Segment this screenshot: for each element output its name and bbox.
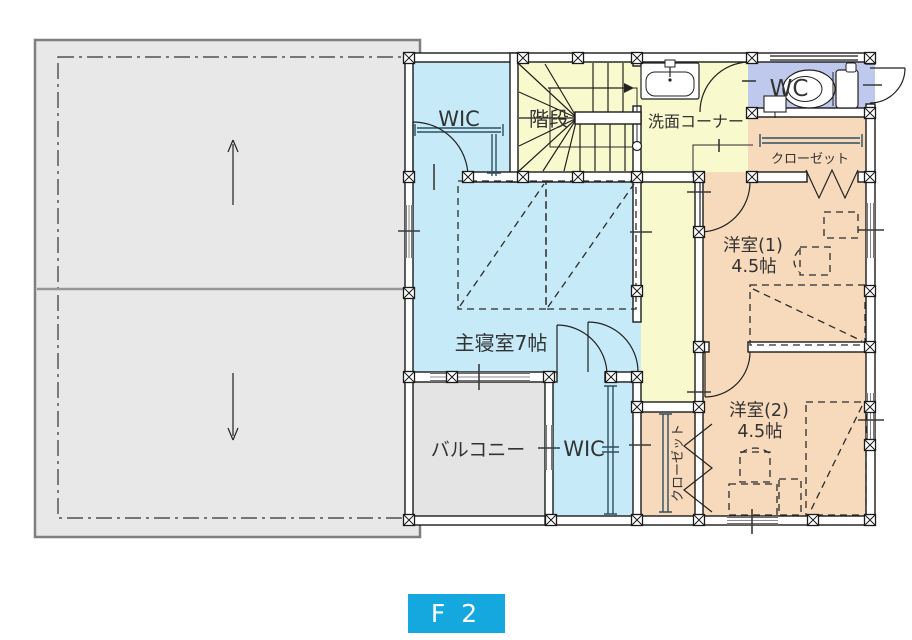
- room-western-1: [695, 172, 875, 352]
- room-label-stairs: 階段: [529, 107, 569, 131]
- room-label-balcony: バルコニー: [431, 439, 526, 461]
- floor-badge: F 2: [408, 594, 505, 633]
- room-label-washroom: 洗面コーナー: [648, 112, 744, 131]
- corridor: [633, 172, 703, 412]
- room-label-master-bedroom: 主寝室7帖: [455, 331, 548, 355]
- room-label-closet-lower: クローゼット: [671, 424, 686, 502]
- floor-plan-page: WIC 階段 洗面コーナー WC クローゼット 洋室(1) 4.5帖 洋室(2)…: [0, 0, 912, 640]
- room-label-wic-upper: WIC: [438, 107, 480, 131]
- room-label-western2: 洋室(2): [729, 401, 789, 421]
- wall-closet-lower-right: [695, 412, 703, 525]
- stair-center-rail: [575, 112, 641, 124]
- room-area-western1: 4.5帖: [731, 257, 776, 277]
- room-label-wic-lower: WIC: [563, 437, 605, 461]
- wall-corridor-bottom: [633, 402, 703, 412]
- wall-exterior-right-b: [866, 104, 875, 525]
- room-area-western2: 4.5帖: [737, 422, 782, 442]
- room-label-closet-upper: クローゼット: [771, 152, 849, 167]
- room-closet-upper: [748, 108, 875, 182]
- wall-corridor-right: [695, 172, 703, 412]
- wall-bedroom-right: [633, 172, 641, 322]
- floor-plan-drawing: WIC 階段 洗面コーナー WC クローゼット 洋室(1) 4.5帖 洋室(2)…: [0, 0, 912, 640]
- wall-western-divider: [748, 342, 875, 352]
- floor-badge-label: F 2: [431, 599, 481, 628]
- stair-newel-post: [633, 142, 642, 151]
- room-label-western1: 洋室(1): [723, 236, 783, 256]
- sink-icon: [641, 60, 699, 99]
- room-label-wc: WC: [770, 76, 809, 102]
- roof-area: [35, 40, 420, 537]
- wall-wic-stairs: [510, 53, 518, 182]
